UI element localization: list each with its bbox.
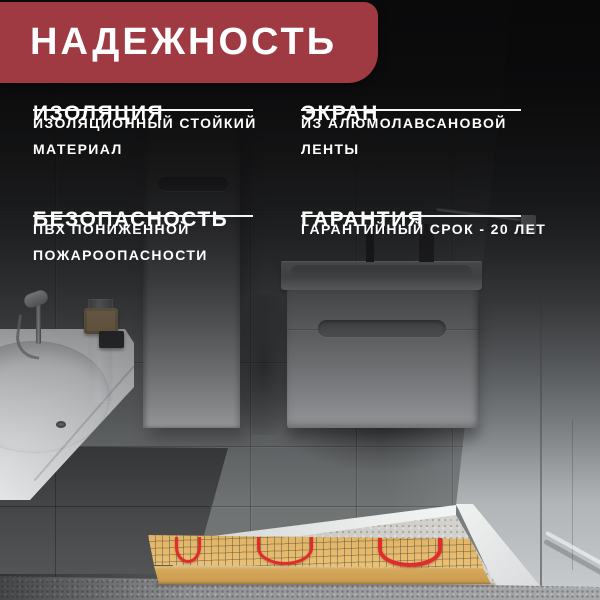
feature-description: ИЗ АЛЮМОЛАВСАНОВОЙ ЛЕНТЫ [301,110,547,162]
vanity-cabinet [287,290,478,428]
vanity-shadow [280,424,490,474]
feature-description: ПВХ ПОНИЖЕННОЙ ПОЖАРООПАСНОСТИ [33,216,279,268]
feature-description: ИЗОЛЯЦИОННЫЙ СТОЙКИЙ МАТЕРИАЛ [33,110,279,162]
feature-description: ГАРАНТИЙНЫЙ СРОК - 20 ЛЕТ [301,216,547,242]
bathtub-drain [56,421,66,428]
vanity-handle-groove [318,320,446,337]
bathroom-photo [0,0,600,600]
door-groove [540,250,542,592]
title-banner: НАДЕЖНОСТЬ [0,2,378,83]
tile-grout-horizontal [0,506,210,507]
promo-infographic: НАДЕЖНОСТЬ ИЗОЛЯЦИЯ ИЗОЛЯЦИОННЫЙ СТОЙКИЙ… [0,0,600,600]
mat-shadow [155,583,495,586]
sink-basin [291,265,472,278]
sink-countertop [281,261,482,290]
cabinet-handle-groove [158,177,228,191]
wall-shadow [236,295,292,435]
tile-grout-vertical [250,0,251,565]
tub-mixer [99,331,124,348]
tall-cabinet [143,126,240,428]
banner-title: НАДЕЖНОСТЬ [30,21,337,64]
